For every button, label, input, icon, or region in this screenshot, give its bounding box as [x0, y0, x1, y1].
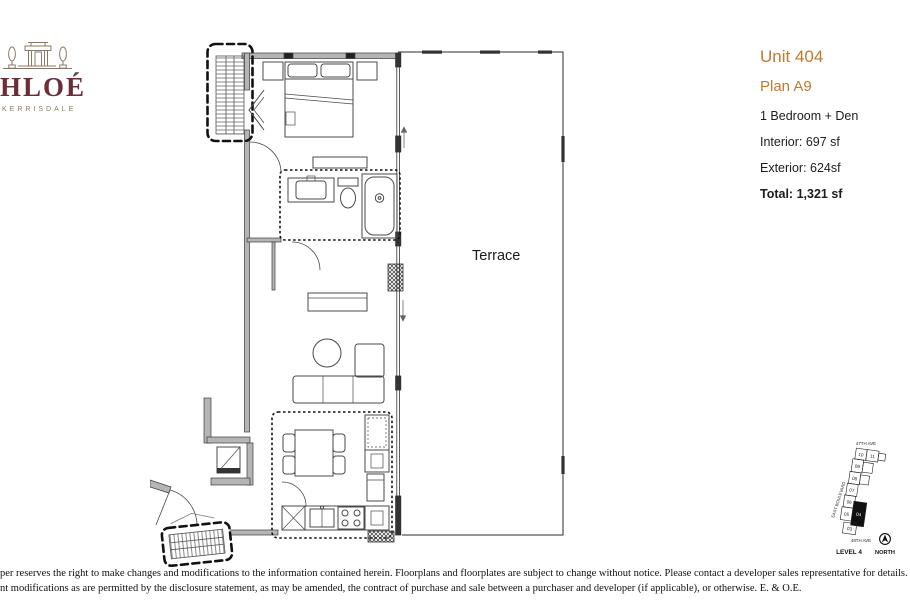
svg-text:05: 05: [844, 511, 850, 517]
street-top-label: 47TH AVE: [856, 441, 876, 446]
street-bottom-label: 48TH AVE: [851, 538, 871, 543]
slider-direction-arrows: [400, 127, 406, 321]
disclaimer-text: per reserves the right to make changes a…: [0, 566, 910, 596]
disclaimer-line-1: per reserves the right to make changes a…: [0, 566, 910, 581]
terrace-label: Terrace: [472, 248, 520, 264]
window-wall: [396, 53, 401, 535]
floorplan-sheet: HLOÉ KERRISDALE Unit 404 Plan A9 1 Bedro…: [0, 0, 910, 606]
svg-text:09: 09: [854, 464, 860, 470]
brand-name: HLOÉ: [0, 74, 110, 101]
north-compass-icon: [880, 534, 891, 545]
svg-text:07: 07: [849, 488, 855, 494]
plan-name: Plan A9: [760, 78, 910, 95]
svg-text:08: 08: [852, 476, 858, 482]
brand-logo: HLOÉ KERRISDALE: [0, 38, 110, 113]
living-room-furniture: [293, 339, 384, 403]
total-area: Total: 1,321 sf: [760, 187, 910, 201]
building-footprint: 10 11 09 08 07 06 05 04 03: [838, 447, 886, 537]
portico-trees-icon: [2, 38, 74, 72]
bedroom-furniture: [263, 62, 377, 168]
svg-text:03: 03: [847, 526, 853, 532]
unit-walls: [150, 53, 398, 535]
dining-kitchen: [272, 412, 394, 542]
unit-type: 1 Bedroom + Den: [760, 109, 910, 123]
svg-text:11: 11: [870, 454, 876, 460]
exterior-area: Exterior: 624sf: [760, 161, 910, 175]
svg-text:10: 10: [858, 452, 864, 458]
den: [292, 242, 403, 311]
keyplan: 47TH AVE EAST BOULEVARD 10 11 09 08 07 0…: [828, 436, 908, 556]
level-label: LEVEL 4: [836, 549, 862, 556]
terrace-outline: [398, 52, 563, 535]
unit-info-panel: Unit 404 Plan A9 1 Bedroom + Den Interio…: [760, 47, 910, 213]
unit-number: Unit 404: [760, 47, 910, 67]
brand-location: KERRISDALE: [2, 106, 110, 113]
svg-text:06: 06: [846, 499, 852, 505]
north-label: NORTH: [875, 550, 895, 556]
disclaimer-line-2: nt modifications as are permitted by the…: [0, 581, 910, 596]
interior-area: Interior: 697 sf: [760, 135, 910, 149]
floor-plan-drawing: Terrace: [150, 36, 575, 568]
